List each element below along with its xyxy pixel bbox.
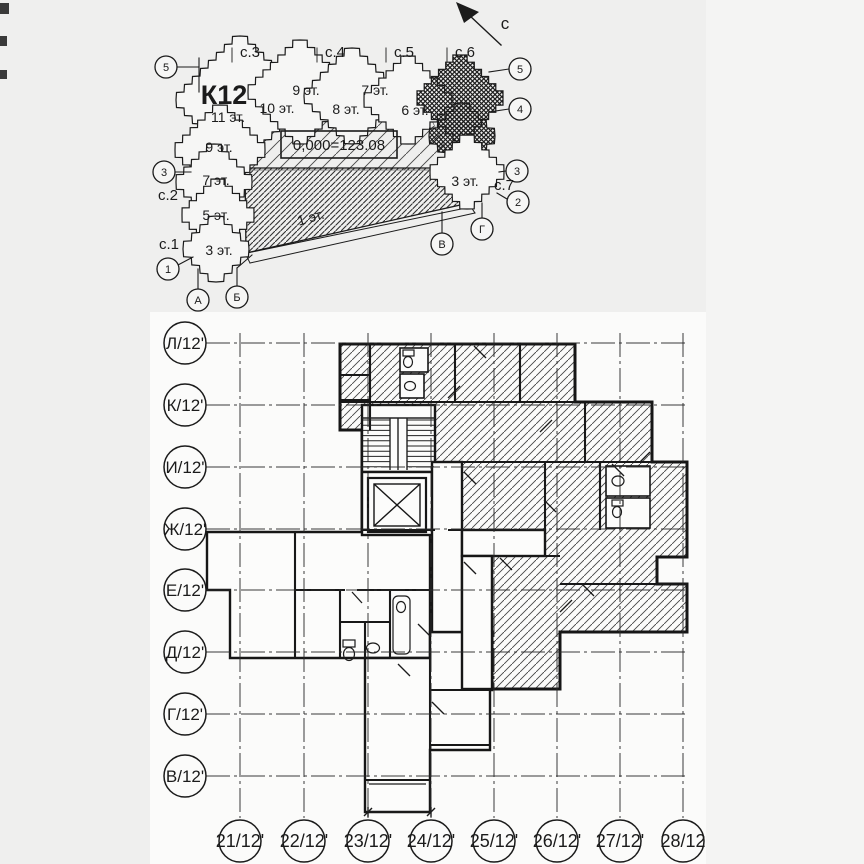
- svg-text:3 эт.: 3 эт.: [205, 242, 232, 258]
- axis-circle-label: 1: [165, 264, 171, 276]
- col-axis-label: 24/12': [407, 831, 455, 851]
- row-axis-label: К/12': [167, 396, 204, 415]
- axis-circle-label: 2: [515, 197, 521, 209]
- north-label: с: [501, 14, 510, 33]
- row-axis-label: И/12': [165, 458, 204, 477]
- svg-text:8 эт.: 8 эт.: [332, 101, 359, 117]
- row-axis-label: Л/12': [166, 334, 204, 353]
- svg-text:7 эт.: 7 эт.: [361, 82, 388, 98]
- axis-circle-label: 5: [163, 62, 169, 74]
- axis-circle-label: 3: [161, 167, 167, 179]
- site-section-top-label: с.5: [394, 44, 414, 61]
- axis-circle-label: 5: [517, 64, 523, 76]
- col-axis-label: 28/12: [660, 831, 705, 851]
- svg-text:7 эт.: 7 эт.: [202, 172, 229, 188]
- architectural-drawing: с 0,000=123.08 5315432АБВГс.3с.4с.5с.6 К…: [0, 0, 864, 864]
- wc-cell-2: [400, 374, 424, 398]
- elevation-label: 0,000=123.08: [293, 137, 385, 154]
- col-axis-label: 27/12': [596, 831, 644, 851]
- svg-text:с.1: с.1: [159, 236, 179, 253]
- axis-circle-label: А: [194, 295, 202, 307]
- row-axis-label: Г/12': [167, 705, 203, 724]
- row-axis-label: Д/12': [166, 643, 204, 662]
- svg-text:с.7: с.7: [494, 177, 514, 194]
- svg-text:9 эт.: 9 эт.: [205, 139, 232, 155]
- axis-circle-label: В: [438, 239, 445, 251]
- col-axis-label: 21/12': [216, 831, 264, 851]
- site-section-top-label: с.3: [240, 44, 260, 61]
- corridor-branch: [462, 530, 545, 556]
- col-axis-label: 25/12': [470, 831, 518, 851]
- svg-text:5 эт.: 5 эт.: [202, 207, 229, 223]
- col-axis-label: 22/12': [280, 831, 328, 851]
- svg-text:11 эт.: 11 эт.: [211, 109, 245, 125]
- svg-text:10 эт.: 10 эт.: [259, 100, 294, 116]
- axis-circle-label: 4: [517, 104, 523, 116]
- right-margin-strip: [706, 0, 864, 864]
- svg-text:3 эт.: 3 эт.: [451, 173, 478, 189]
- col-axis-label: 23/12': [344, 831, 392, 851]
- site-section-top-label: с.6: [455, 44, 475, 61]
- axis-circle-label: Б: [233, 292, 240, 304]
- corridor-south: [462, 556, 492, 689]
- site-section-top-label: с.4: [325, 44, 345, 61]
- svg-text:6 эт.: 6 эт.: [401, 102, 428, 118]
- blueprint-page: с 0,000=123.08 5315432АБВГс.3с.4с.5с.6 К…: [0, 0, 864, 864]
- building-label: К12: [201, 80, 248, 110]
- axis-circle-label: Г: [479, 224, 485, 236]
- row-axis-label: Е/12': [166, 581, 204, 600]
- row-axis-label: В/12': [166, 767, 204, 786]
- corridor: [432, 462, 462, 632]
- col-axis-label: 26/12': [533, 831, 581, 851]
- axis-circle-label: 3: [514, 166, 520, 178]
- svg-text:с.2: с.2: [158, 187, 178, 204]
- svg-text:9 эт.: 9 эт.: [292, 82, 319, 98]
- row-axis-label: Ж/12': [164, 520, 207, 539]
